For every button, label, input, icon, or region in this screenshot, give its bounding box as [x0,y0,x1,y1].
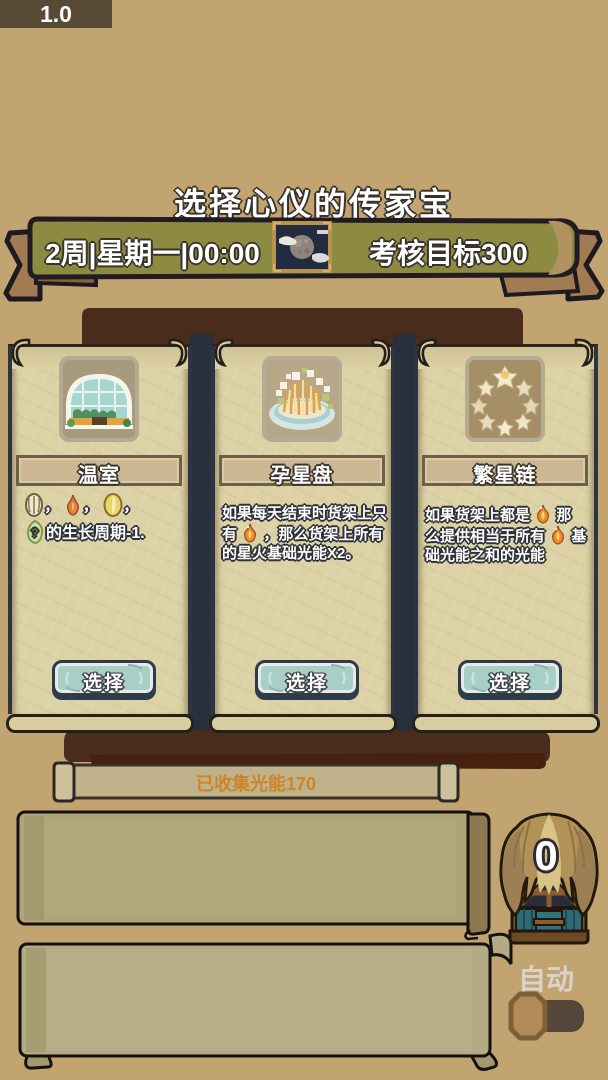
svg-text:?: ? [31,526,38,540]
